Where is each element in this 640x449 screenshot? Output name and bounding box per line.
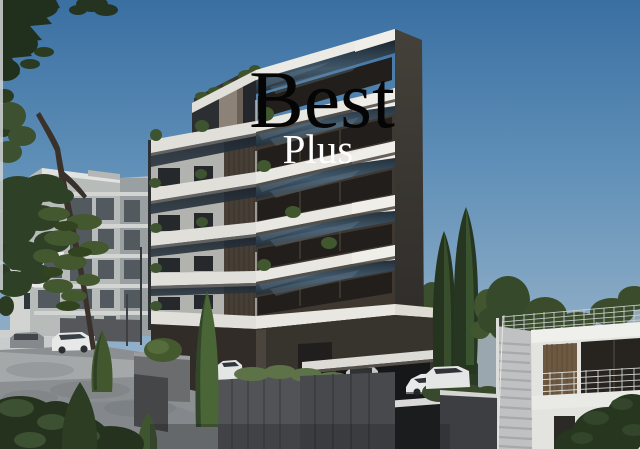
svg-text:Plus: Plus <box>283 126 354 172</box>
